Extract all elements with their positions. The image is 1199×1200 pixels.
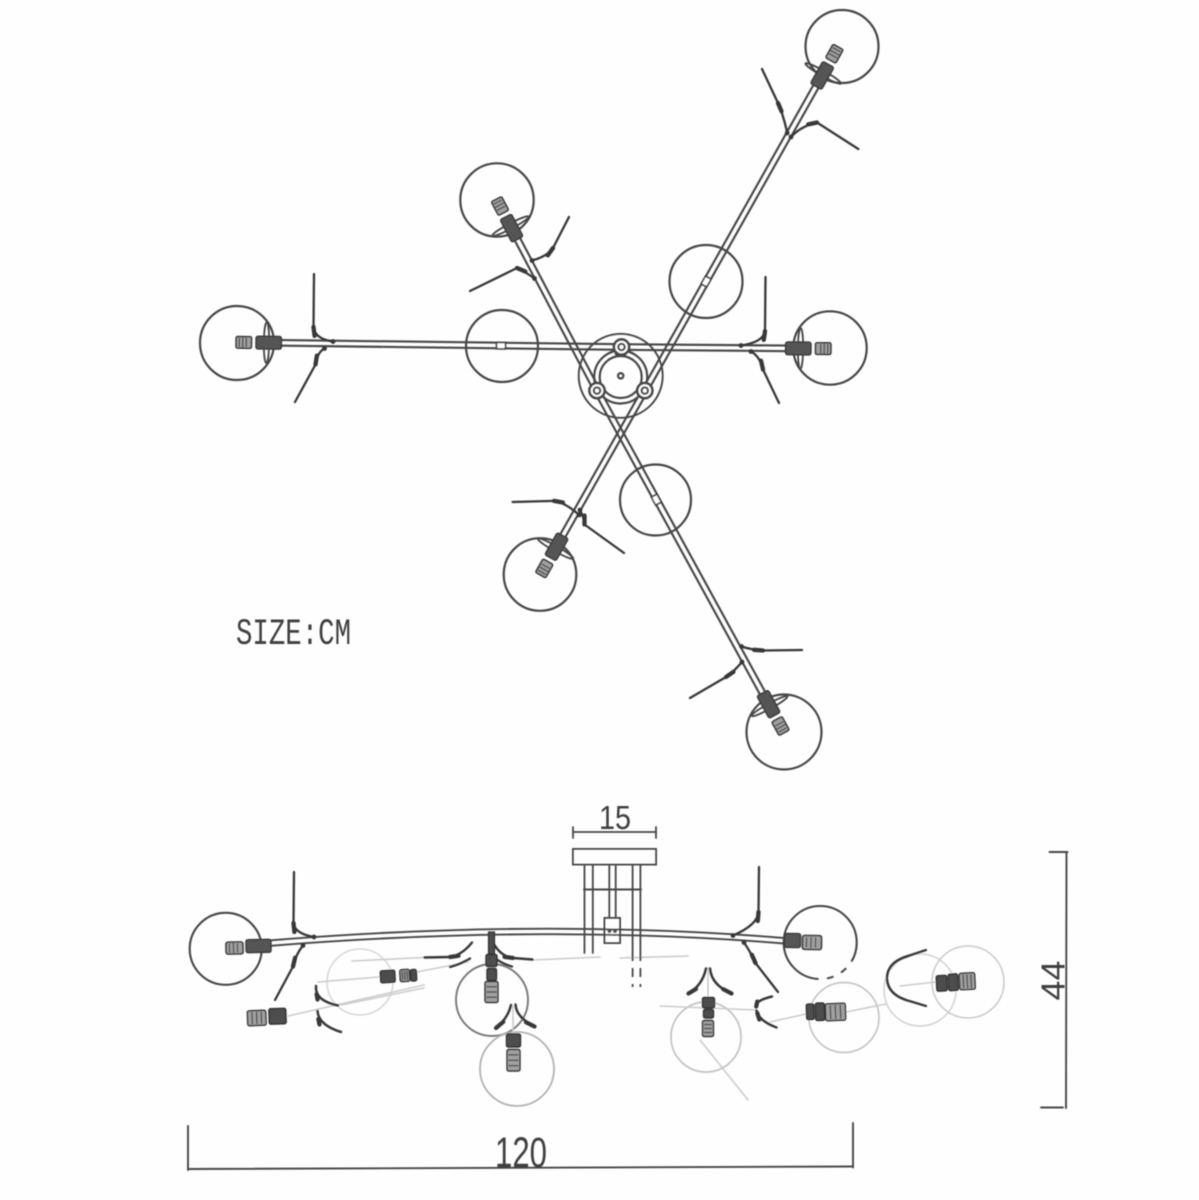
svg-text:44: 44 (1035, 961, 1072, 1001)
svg-text:120: 120 (495, 1129, 547, 1177)
svg-text:15: 15 (599, 799, 631, 836)
svg-text:SIZE:CM: SIZE:CM (236, 614, 351, 656)
